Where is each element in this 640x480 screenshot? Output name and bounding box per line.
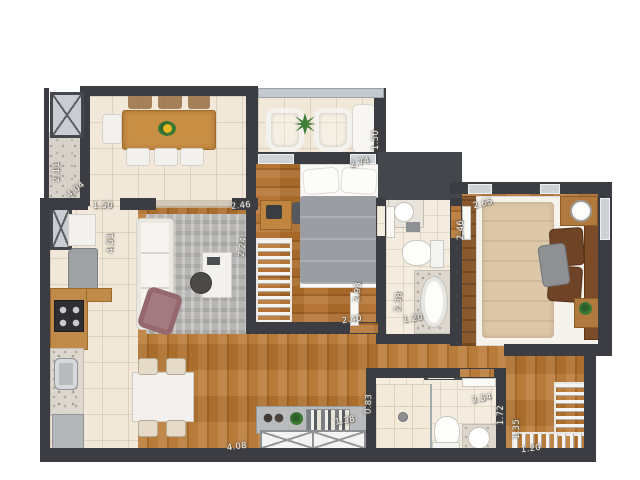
plant-star-icon — [294, 112, 316, 136]
bathroom1-basin — [394, 202, 414, 222]
shower-drain-icon — [398, 412, 408, 422]
washing-machine — [68, 214, 96, 246]
lamp-icon — [570, 200, 592, 222]
bathroom2-basin — [468, 427, 490, 449]
wall-closet-right — [584, 348, 596, 460]
fridge — [68, 248, 98, 292]
dim-bathroom1-length: 2.38 — [393, 292, 404, 313]
nook-chair — [166, 420, 186, 437]
floor-plan: 2.11 4.04 1.50 4.51 2.46 2.24 1.50 2.74 … — [0, 0, 640, 480]
wardrobe — [256, 238, 292, 326]
nook-chair — [138, 420, 158, 437]
dim-bedroom1-entry: 2.24 — [237, 236, 249, 257]
dim-sideboard-depth: 0.83 — [364, 394, 375, 414]
dim-hall-width: 2.11 — [52, 162, 62, 182]
bathroom1-door — [386, 206, 395, 238]
balcony-chair — [314, 108, 352, 152]
closet-shelf — [554, 382, 588, 436]
tv-remote — [207, 257, 220, 265]
master-side-window — [600, 198, 610, 240]
ottoman — [190, 272, 212, 294]
bed1-duvet — [300, 196, 378, 284]
balcony-railing — [258, 88, 384, 98]
toilet — [402, 240, 432, 266]
dim-kitchen-entry: 1.50 — [93, 201, 113, 211]
dim-bedroom1-length: 2.93 — [352, 282, 364, 303]
dining-chair — [126, 148, 150, 166]
elevator-x-icon — [50, 92, 84, 138]
table-flower-icon — [163, 124, 172, 133]
plant-icon — [579, 302, 592, 315]
nook-chair — [138, 358, 158, 375]
wall-top — [80, 86, 258, 96]
wall-bottom — [40, 448, 596, 462]
sideboard-door — [260, 430, 314, 450]
opening-beam — [156, 200, 232, 208]
dining-chair — [180, 148, 204, 166]
dining-chair — [128, 94, 152, 109]
bed2-throw-pillow — [537, 242, 571, 287]
wall-kitchen-a — [50, 198, 88, 210]
corridor-floor — [378, 344, 506, 368]
master-window — [468, 184, 492, 194]
bed1-pillow — [340, 167, 378, 195]
dim-balcony-depth: 1.50 — [371, 130, 381, 150]
dim-kitchen-length: 4.51 — [106, 233, 116, 253]
bathroom2-door — [462, 378, 496, 387]
sideboard-bowls — [262, 410, 286, 426]
kitchen-cabinet — [52, 414, 84, 450]
dining-chair — [154, 148, 178, 166]
bathtub — [420, 276, 448, 328]
dining-chair — [102, 114, 122, 144]
kitchen-bar — [86, 288, 112, 302]
wall-hall-left — [44, 88, 49, 204]
laptop — [266, 205, 282, 219]
wall-left — [40, 198, 50, 460]
dim-master-depth: 2.46 — [456, 220, 466, 240]
bathroom2-door-gap — [460, 369, 494, 377]
bathroom1-towel — [406, 222, 420, 232]
wall-kitchen-b — [120, 198, 156, 210]
dining-chair — [158, 94, 182, 109]
nook-chair — [166, 358, 186, 375]
toilet-tank — [430, 240, 444, 268]
bathroom1-door-gap — [377, 206, 385, 236]
dim-bathroom2-depth: 1.72 — [496, 405, 506, 425]
sideboard-door — [312, 430, 366, 450]
dim-bedroom1-width: 2.46 — [230, 200, 251, 212]
dining-chair — [188, 94, 210, 109]
stove-icon — [54, 300, 84, 332]
kitchen-sink — [54, 358, 78, 390]
dim-closet-depth: 1.35 — [512, 419, 522, 439]
sideboard-plant-icon — [290, 412, 303, 425]
bed1-pillow — [302, 166, 340, 195]
nook-table — [132, 372, 194, 422]
balcony-slider-window — [258, 154, 294, 164]
master-window — [540, 184, 560, 194]
